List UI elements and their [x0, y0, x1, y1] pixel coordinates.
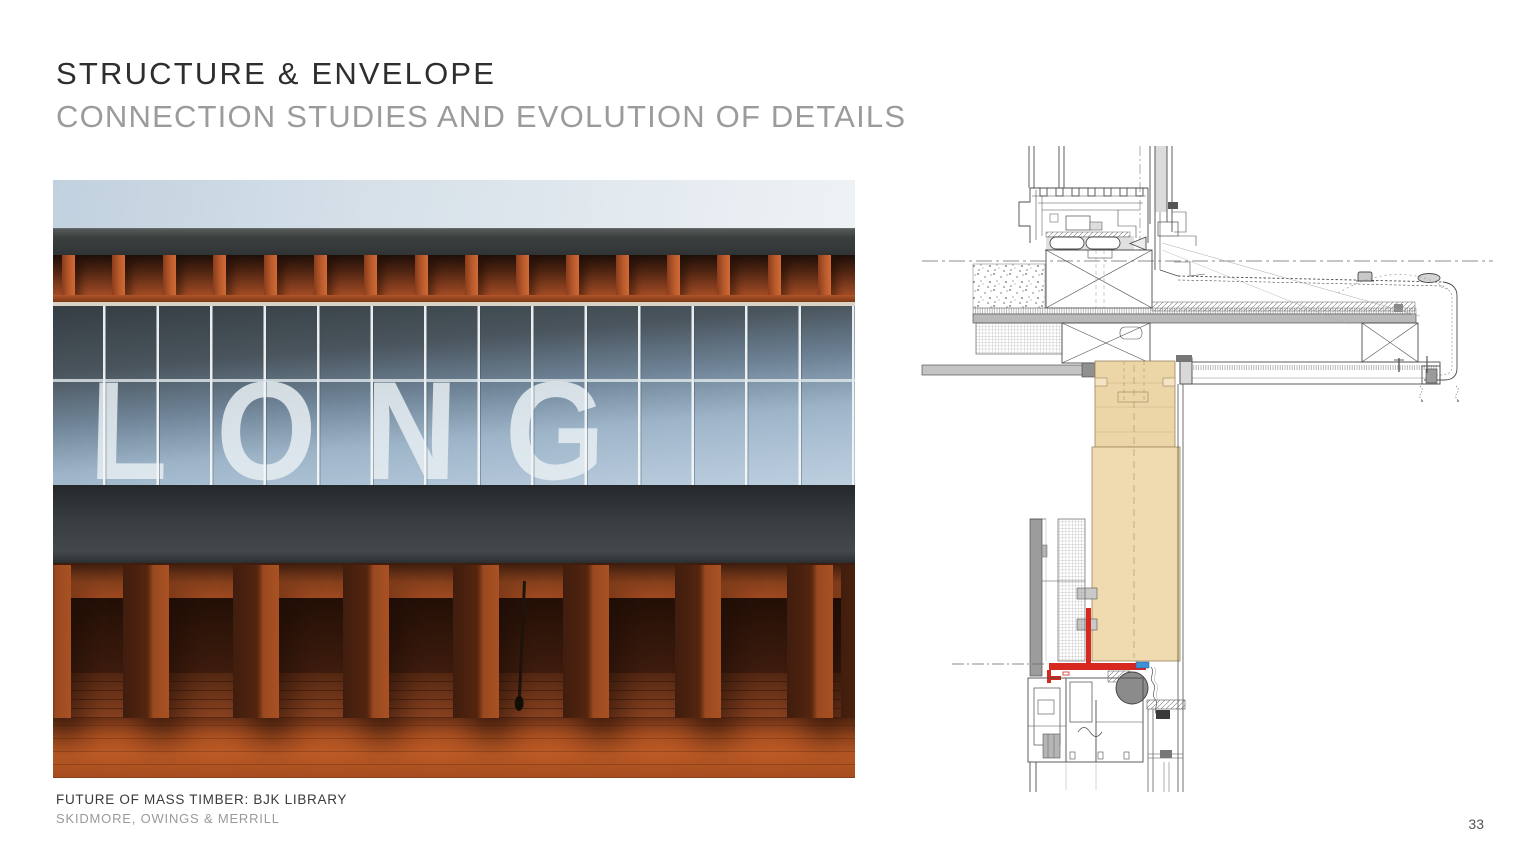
glulam-fin	[123, 565, 169, 718]
upper-fin	[314, 255, 327, 296]
glulam-fin	[563, 565, 609, 718]
footer-firm: SKIDMORE, OWINGS & MERRILL	[56, 811, 280, 826]
photo-roof-fascia	[53, 228, 855, 256]
shim-blue	[1136, 662, 1149, 668]
photo-spandrel-band	[53, 485, 855, 563]
upper-fin	[163, 255, 176, 296]
slide-subtitle: CONNECTION STUDIES AND EVOLUTION OF DETA…	[56, 99, 906, 135]
section-detail-drawing	[910, 140, 1510, 800]
left-soffit-band	[922, 365, 1095, 375]
glulam-fin	[343, 565, 389, 718]
upper-fin	[465, 255, 478, 296]
concrete-stipple	[973, 264, 1045, 308]
glulam-fin	[53, 565, 71, 718]
steel-plate-band	[973, 314, 1416, 323]
upper-fin	[62, 255, 75, 296]
blocking-box-upper	[1046, 250, 1152, 308]
glulam-fin	[787, 565, 833, 718]
upper-fin	[213, 255, 226, 296]
photo-lower-colonnade	[53, 563, 855, 778]
glulam-fin	[675, 565, 721, 718]
canopy-x-box	[1362, 323, 1418, 362]
presentation-slide: STRUCTURE & ENVELOPE CONNECTION STUDIES …	[0, 0, 1536, 864]
insulation-horizontal	[976, 323, 1062, 354]
window-head-assembly	[1019, 188, 1205, 276]
photo-sky	[53, 180, 855, 228]
photo-front-floor	[53, 718, 855, 778]
upper-fin	[566, 255, 579, 296]
upper-fin	[768, 255, 781, 296]
upper-fin	[818, 255, 831, 296]
glulam-fin	[233, 565, 279, 718]
photo-mullions	[53, 302, 855, 485]
upper-fin	[717, 255, 730, 296]
blocking-box-lower	[1062, 323, 1150, 363]
upper-fin	[616, 255, 629, 296]
photo-glass-top-edge	[53, 302, 855, 306]
page-number: 33	[1452, 816, 1484, 832]
glulam-fin	[453, 565, 499, 718]
upper-fin	[415, 255, 428, 296]
upper-fin	[667, 255, 680, 296]
glulam-fin	[841, 565, 855, 718]
upper-fin	[264, 255, 277, 296]
photo-ledge	[53, 295, 855, 302]
upper-fin	[516, 255, 529, 296]
lower-wall	[1030, 519, 1085, 676]
timber-column	[1077, 361, 1180, 661]
upper-fin	[364, 255, 377, 296]
slide-title: STRUCTURE & ENVELOPE	[56, 56, 496, 92]
photo-transom	[53, 379, 855, 382]
footer-project: FUTURE OF MASS TIMBER: BJK LIBRARY	[56, 792, 347, 807]
upper-fin	[112, 255, 125, 296]
facade-photo: LONG	[53, 180, 855, 778]
